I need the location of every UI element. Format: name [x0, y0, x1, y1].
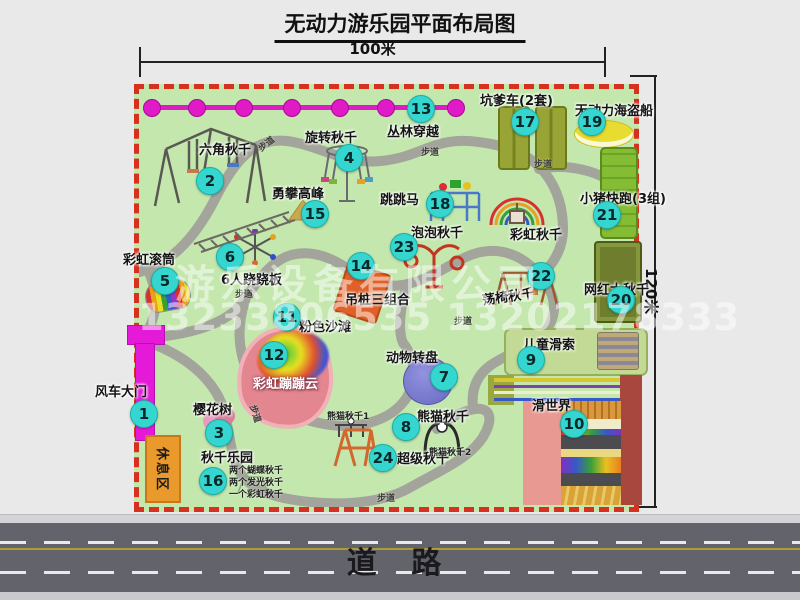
sidewalk-bottom: [0, 592, 800, 600]
park-map: 步道 步道 步道 步道 步道 步道 步道: [134, 84, 639, 512]
marker-15: 15: [301, 200, 329, 228]
panda-swing-1-label: 熊猫秋千1: [327, 409, 369, 422]
marker-17: 17: [511, 108, 539, 136]
path-label: 步道: [534, 157, 552, 170]
path-label: 步道: [421, 145, 439, 158]
zipline-dot: [331, 99, 349, 117]
marker-19: 19: [578, 108, 606, 136]
top-dimension-line: [140, 61, 605, 63]
marker-3: 3: [205, 419, 233, 447]
road: 道 路: [0, 514, 800, 600]
slide-world-track-pink: [523, 401, 561, 505]
marker-9: 9: [517, 346, 545, 374]
marker-5: 5: [151, 267, 179, 295]
attraction-14-label: 吊桩三组合: [345, 289, 410, 308]
rainbow-arch-swing-icon: [485, 179, 549, 229]
swing-park-details: 两个蝴蝶秋千 两个发光秋千 一个彩虹秋千: [229, 465, 283, 501]
zipline-dot: [447, 99, 465, 117]
marker-12: 12: [260, 341, 288, 369]
attraction-7-label: 动物转盘: [386, 347, 438, 366]
panda-swing-2-label: 熊猫秋千2: [429, 445, 471, 458]
attraction-8-label: 熊猫秋千: [417, 406, 469, 425]
attraction-12-label: 彩虹蹦蹦云: [253, 373, 318, 392]
marker-18: 18: [426, 190, 454, 218]
park-layout-plan: 无动力游乐园平面布局图 100米 120米: [0, 0, 800, 600]
marker-22: 22: [527, 262, 555, 290]
marker-6: 6: [216, 243, 244, 271]
zipline-dot: [283, 99, 301, 117]
marker-24: 24: [369, 444, 397, 472]
marker-8: 8: [392, 413, 420, 441]
marker-20: 20: [607, 286, 635, 314]
width-dimension-label: 100米: [140, 38, 605, 59]
attraction-3-label: 樱花树: [193, 399, 232, 418]
marker-11: 11: [273, 303, 301, 331]
path-label: 步道: [235, 287, 253, 300]
kids-zipline-ladder: [597, 332, 639, 370]
attraction-10-label: 滑世界: [532, 395, 571, 414]
marker-23: 23: [390, 233, 418, 261]
attraction-5-label: 彩虹滚筒: [123, 249, 175, 268]
slide-world-wall: [620, 375, 642, 505]
right-dimension-tick-top: [630, 75, 657, 77]
marker-2: 2: [196, 167, 224, 195]
attraction-6-label: 6人跷跷板: [221, 269, 282, 288]
attraction-11-label: 粉色沙滩: [299, 316, 351, 335]
attraction-18-label: 跳跳马: [380, 189, 419, 208]
climbing-ladder-icon: [189, 194, 319, 254]
marker-1: 1: [130, 400, 158, 428]
attraction-17-label: 坑爹车(2套): [480, 90, 553, 109]
attraction-21-label: 小猪快跑(3组): [580, 188, 666, 207]
marker-14: 14: [347, 252, 375, 280]
marker-21: 21: [593, 201, 621, 229]
rest-area-label: 休息区: [154, 446, 173, 491]
attraction-1-label: 风车大门: [95, 381, 147, 400]
marker-10: 10: [560, 410, 588, 438]
windmill-gate-cap: [127, 325, 165, 345]
zipline-dot: [377, 99, 395, 117]
marker-13: 13: [407, 95, 435, 123]
marker-4: 4: [335, 144, 363, 172]
attraction-16-label: 秋千乐园: [201, 447, 253, 466]
marker-7: 7: [430, 363, 458, 391]
attraction-23-label: 泡泡秋千: [411, 222, 463, 241]
attraction-13-label: 丛林穿越: [387, 121, 439, 140]
attraction-2-label: 六角秋千: [199, 139, 251, 158]
rest-area-zone: 休息区: [145, 435, 181, 503]
path-label: 步道: [377, 491, 395, 504]
path-label: 步道: [454, 314, 472, 327]
road-label: 道 路: [0, 538, 800, 582]
marker-16: 16: [199, 467, 227, 495]
rainbow-swing-label: 彩虹秋千: [510, 224, 562, 243]
